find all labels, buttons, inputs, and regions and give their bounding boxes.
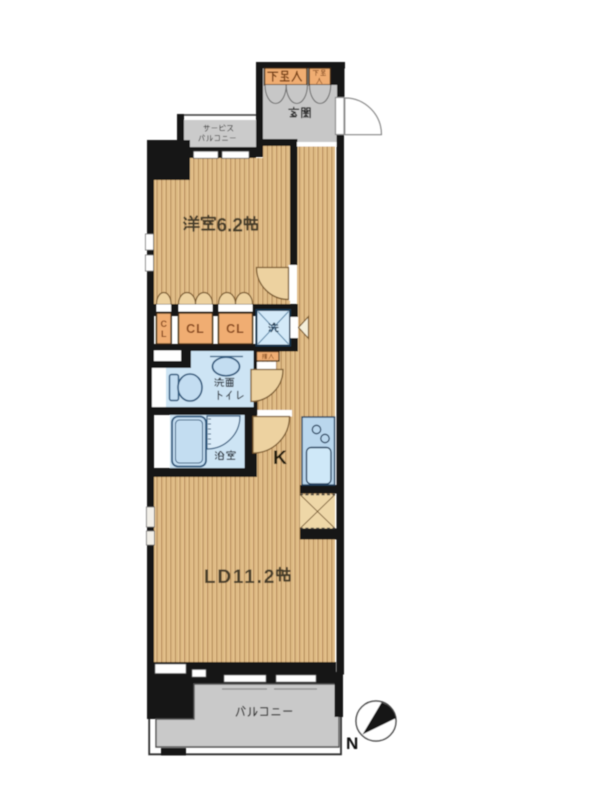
svg-text:CL: CL [226,322,245,336]
svg-text:CL: CL [186,322,205,336]
svg-text:LD11.2: LD11.2 [204,567,276,588]
svg-text:6.2: 6.2 [217,216,243,237]
svg-text:N: N [346,734,358,753]
svg-text:C: C [161,319,168,329]
svg-text:L: L [161,329,167,339]
svg-text:K: K [273,447,287,469]
